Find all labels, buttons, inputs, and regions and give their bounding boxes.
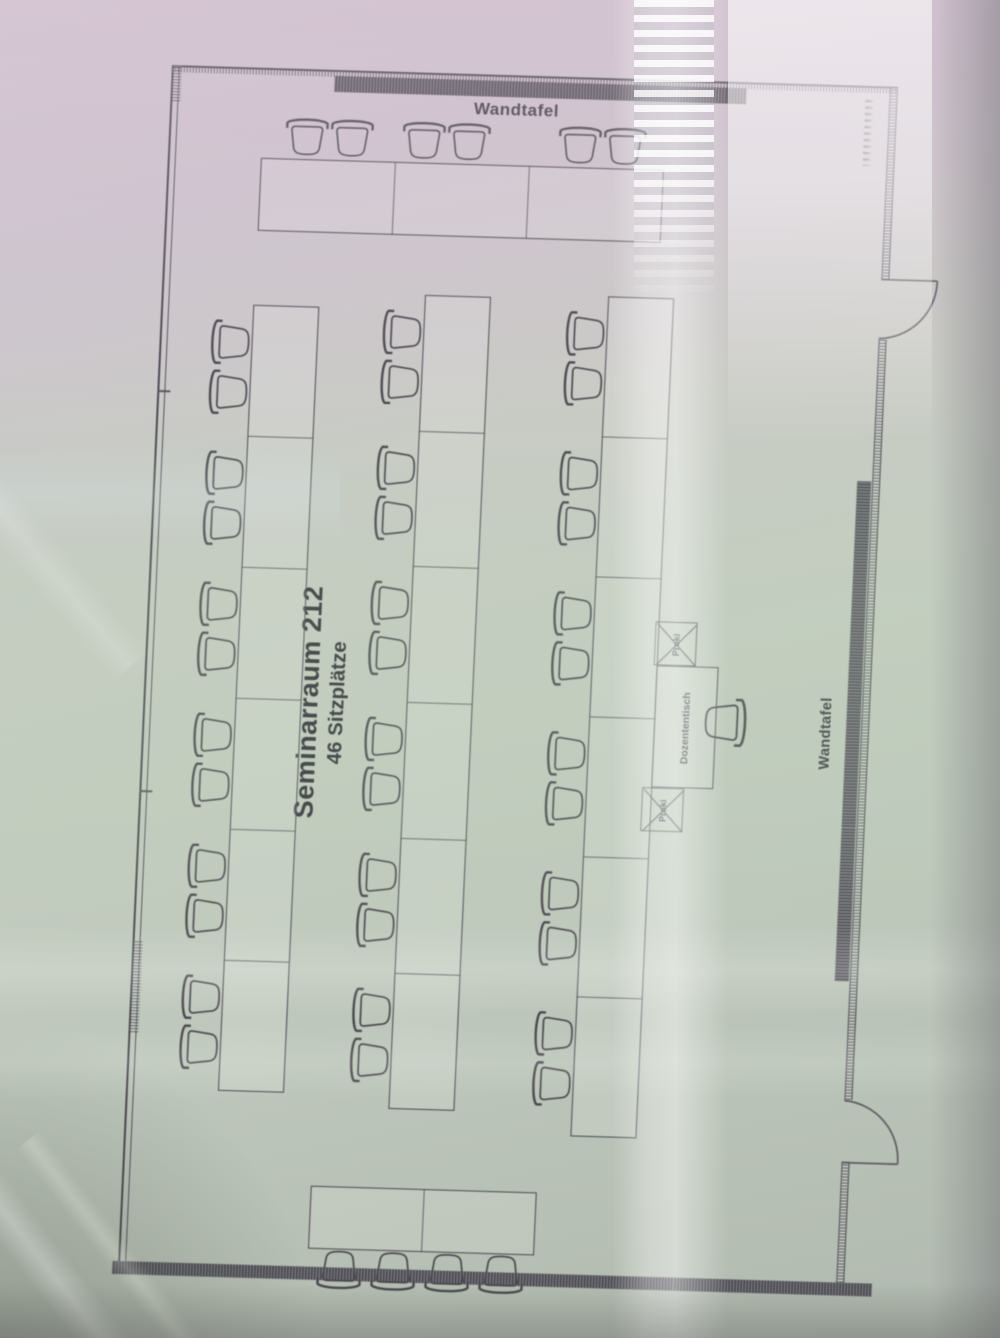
- chair: [359, 715, 409, 764]
- chair: [548, 589, 598, 638]
- chair: [192, 629, 242, 678]
- chair: [357, 765, 407, 814]
- furniture-layer: [118, 65, 898, 1297]
- chair: [203, 367, 253, 416]
- chair: [194, 579, 244, 628]
- chair: [400, 117, 448, 164]
- chair: [375, 358, 425, 407]
- chair: [344, 1036, 394, 1085]
- floor-plan: Wandtafel Wandtafel Seminarraum 212 46 S…: [118, 65, 898, 1297]
- chair: [186, 760, 236, 809]
- chair: [180, 891, 230, 940]
- chair: [174, 1022, 224, 1071]
- chair: [542, 729, 592, 778]
- chair: [206, 317, 256, 366]
- chair: [347, 986, 397, 1035]
- chair: [365, 579, 415, 628]
- chair: [527, 1059, 577, 1108]
- chair: [200, 448, 250, 497]
- chair: [328, 115, 376, 162]
- chair: [314, 1245, 364, 1294]
- chair: [601, 123, 649, 170]
- chair: [556, 122, 604, 169]
- table-band: [258, 158, 664, 243]
- chair: [533, 919, 583, 968]
- chair: [353, 851, 403, 900]
- diagonal-light-streak: [0, 299, 148, 681]
- chair: [554, 449, 604, 498]
- chair: [539, 779, 589, 828]
- chair: [535, 869, 585, 918]
- chair: [176, 972, 226, 1021]
- chair: [368, 1247, 418, 1296]
- chair: [377, 308, 427, 357]
- chair: [476, 1250, 526, 1299]
- chair: [351, 901, 401, 950]
- chair: [182, 841, 232, 890]
- chair: [369, 494, 419, 543]
- framed-floor-plan-photo: Wandtafel Wandtafel Seminarraum 212 46 S…: [0, 0, 1000, 1338]
- chair: [188, 710, 238, 759]
- chair: [422, 1248, 472, 1297]
- chair: [552, 499, 602, 548]
- chair: [283, 113, 331, 160]
- chair: [529, 1009, 579, 1058]
- chair: [558, 359, 608, 408]
- chair: [560, 309, 610, 358]
- photo-edge-shadow-right: [930, 0, 1000, 1338]
- chair: [197, 498, 247, 547]
- chair: [363, 629, 413, 678]
- chair: [445, 118, 493, 165]
- chair: [546, 639, 596, 688]
- chair: [371, 444, 421, 493]
- chair: [698, 696, 752, 750]
